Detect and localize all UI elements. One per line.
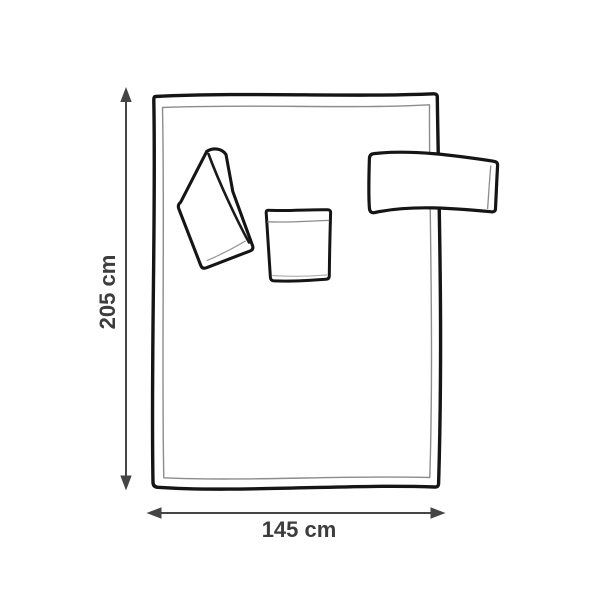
center-pocket-shape	[266, 210, 330, 281]
height-dimension-label: 205 cm	[95, 232, 121, 352]
arrow-down-head	[120, 476, 131, 491]
arrow-left-head	[147, 507, 162, 518]
height-dimension-arrow	[120, 87, 131, 491]
width-dimension-label: 145 cm	[237, 517, 361, 543]
arrow-up-head	[120, 87, 131, 102]
sleeve-outline	[369, 152, 498, 213]
side-sleeve-shape	[369, 152, 498, 213]
arrow-right-head	[431, 507, 446, 518]
diagram-canvas	[0, 0, 600, 600]
product-dimension-diagram: 205 cm 145 cm	[0, 0, 600, 600]
